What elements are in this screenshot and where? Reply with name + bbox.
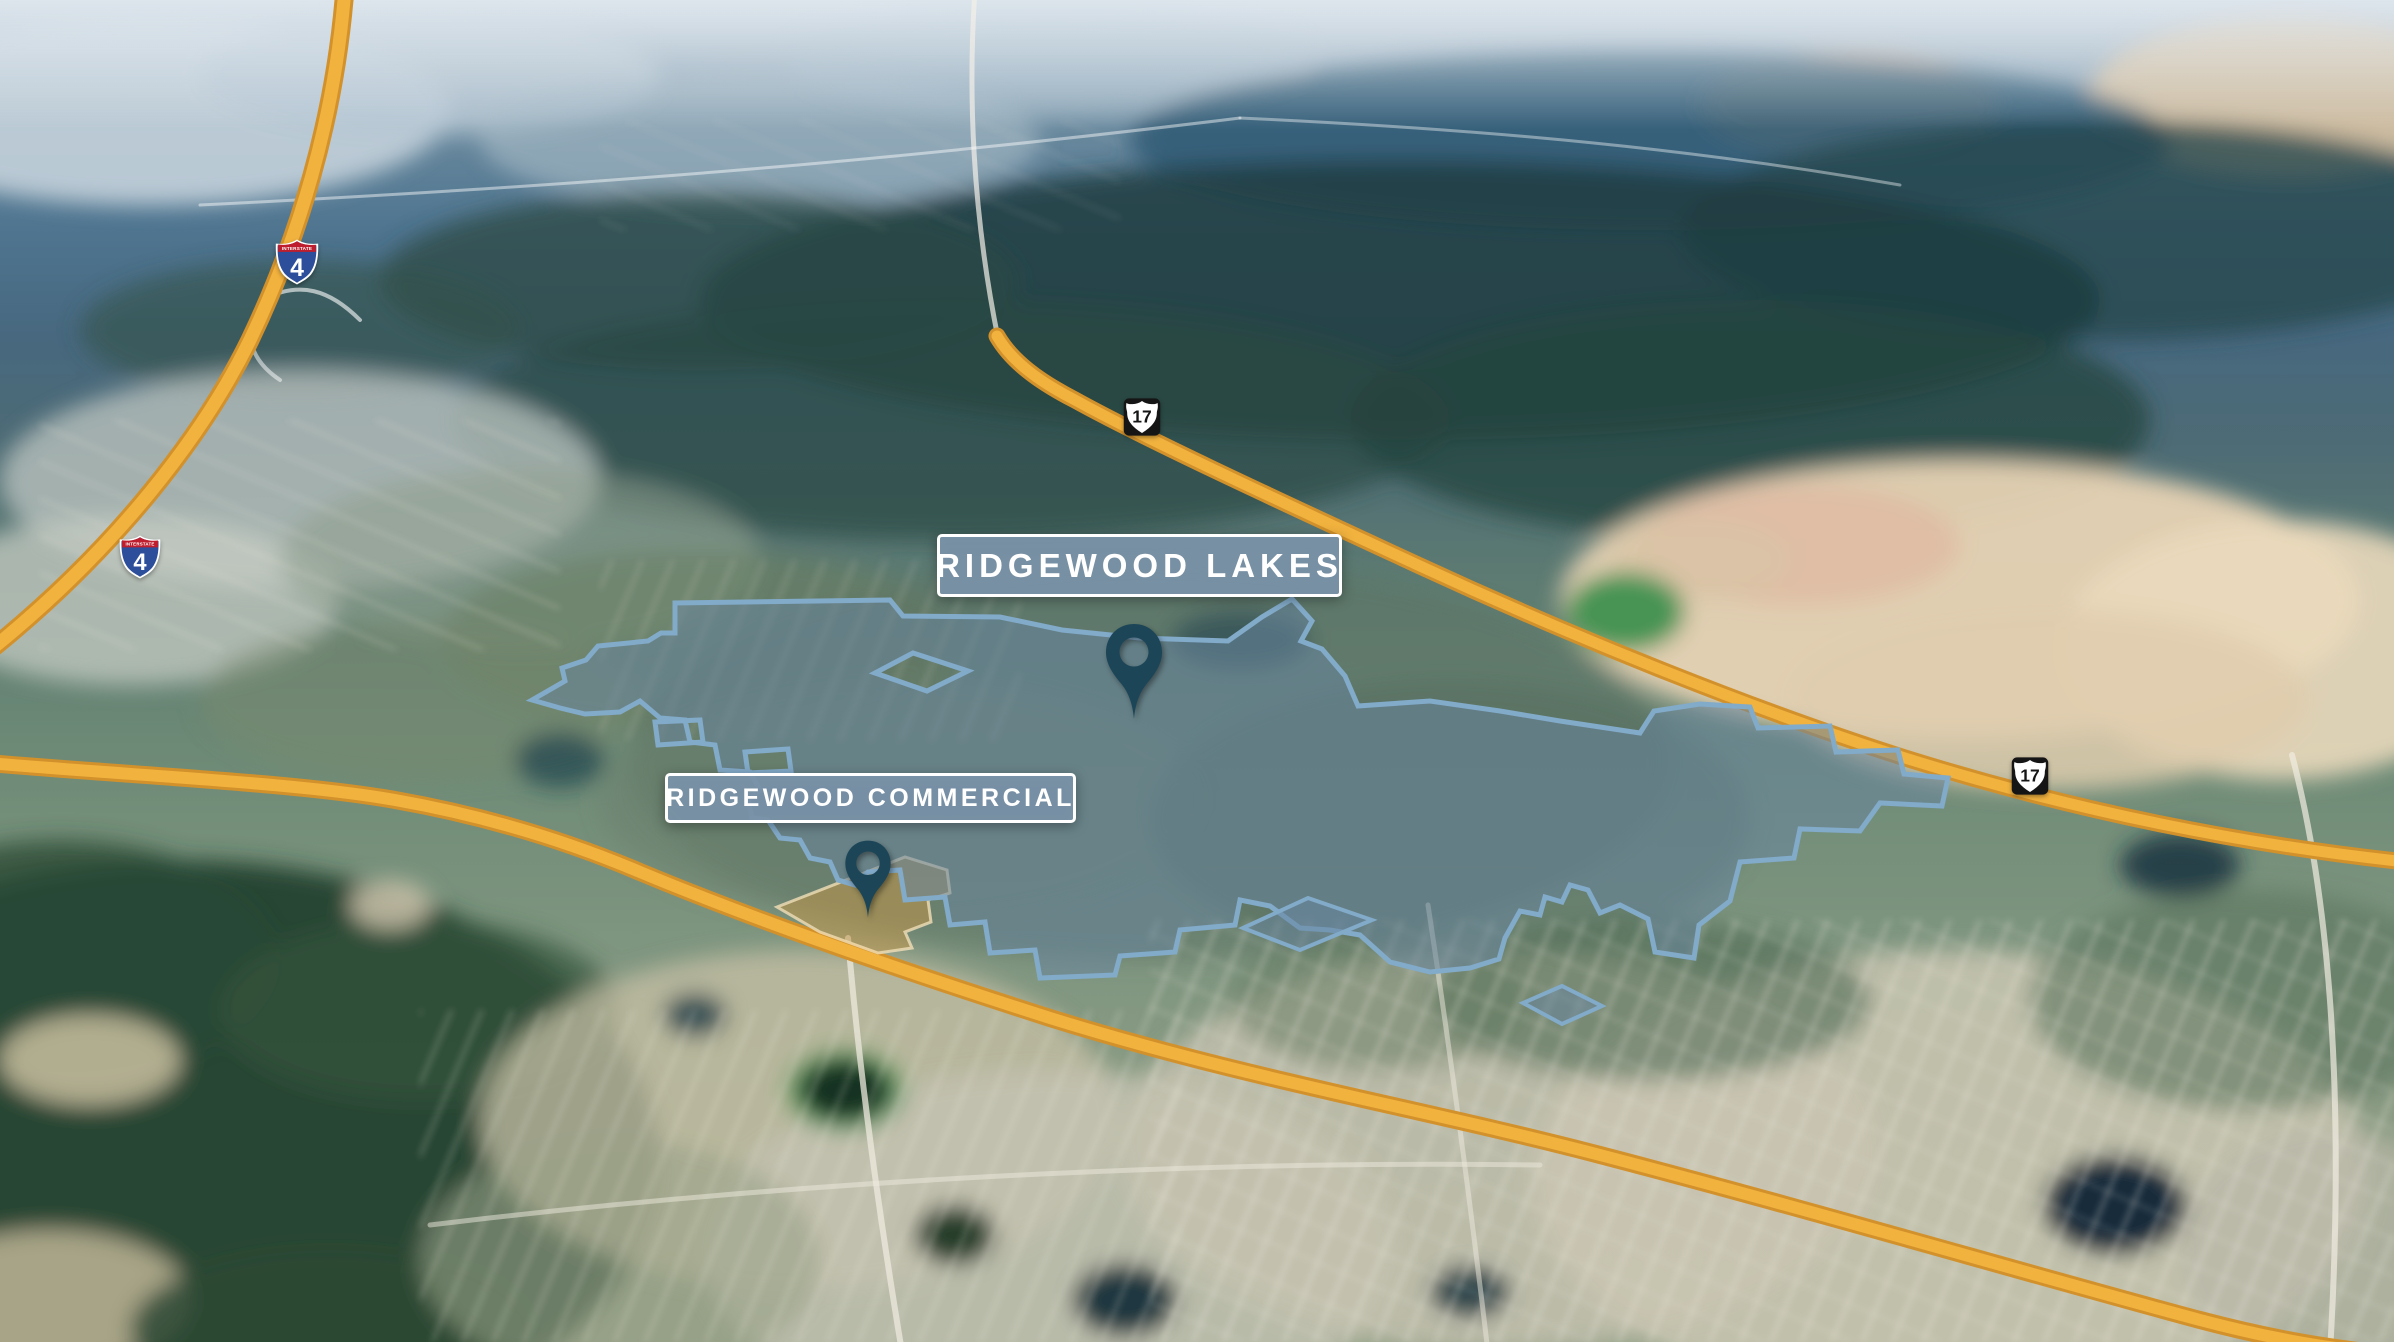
map-pin-icon: [843, 839, 893, 920]
marker-layer: RIDGEWOOD LAKES RIDGEWOOD COMMERCIAL INT…: [0, 0, 2394, 1342]
us-17-shield-icon: 17: [1123, 397, 1161, 437]
ridgewood-lakes-label-text: RIDGEWOOD LAKES: [936, 547, 1343, 585]
aerial-map: RIDGEWOOD LAKES RIDGEWOOD COMMERCIAL INT…: [0, 0, 2394, 1342]
svg-text:4: 4: [290, 255, 304, 282]
ridgewood-lakes-label[interactable]: RIDGEWOOD LAKES: [937, 534, 1342, 597]
ridgewood-commercial-label[interactable]: RIDGEWOOD COMMERCIAL: [665, 773, 1076, 823]
svg-text:4: 4: [133, 549, 147, 576]
svg-text:INTERSTATE: INTERSTATE: [282, 246, 312, 251]
interstate-4-shield-icon: INTERSTATE 4: [118, 534, 162, 580]
ridgewood-commercial-label-text: RIDGEWOOD COMMERCIAL: [666, 784, 1075, 813]
us-17-shield-icon: 17: [2011, 756, 2049, 796]
map-pin-ridgewood-lakes[interactable]: [1103, 622, 1165, 722]
svg-text:17: 17: [2020, 766, 2039, 786]
map-pin-icon: [1103, 622, 1165, 722]
interstate-4-shield-icon: INTERSTATE 4: [274, 238, 320, 286]
svg-text:17: 17: [1132, 407, 1151, 427]
map-pin-ridgewood-commercial[interactable]: [843, 839, 893, 920]
svg-text:INTERSTATE: INTERSTATE: [125, 542, 154, 547]
